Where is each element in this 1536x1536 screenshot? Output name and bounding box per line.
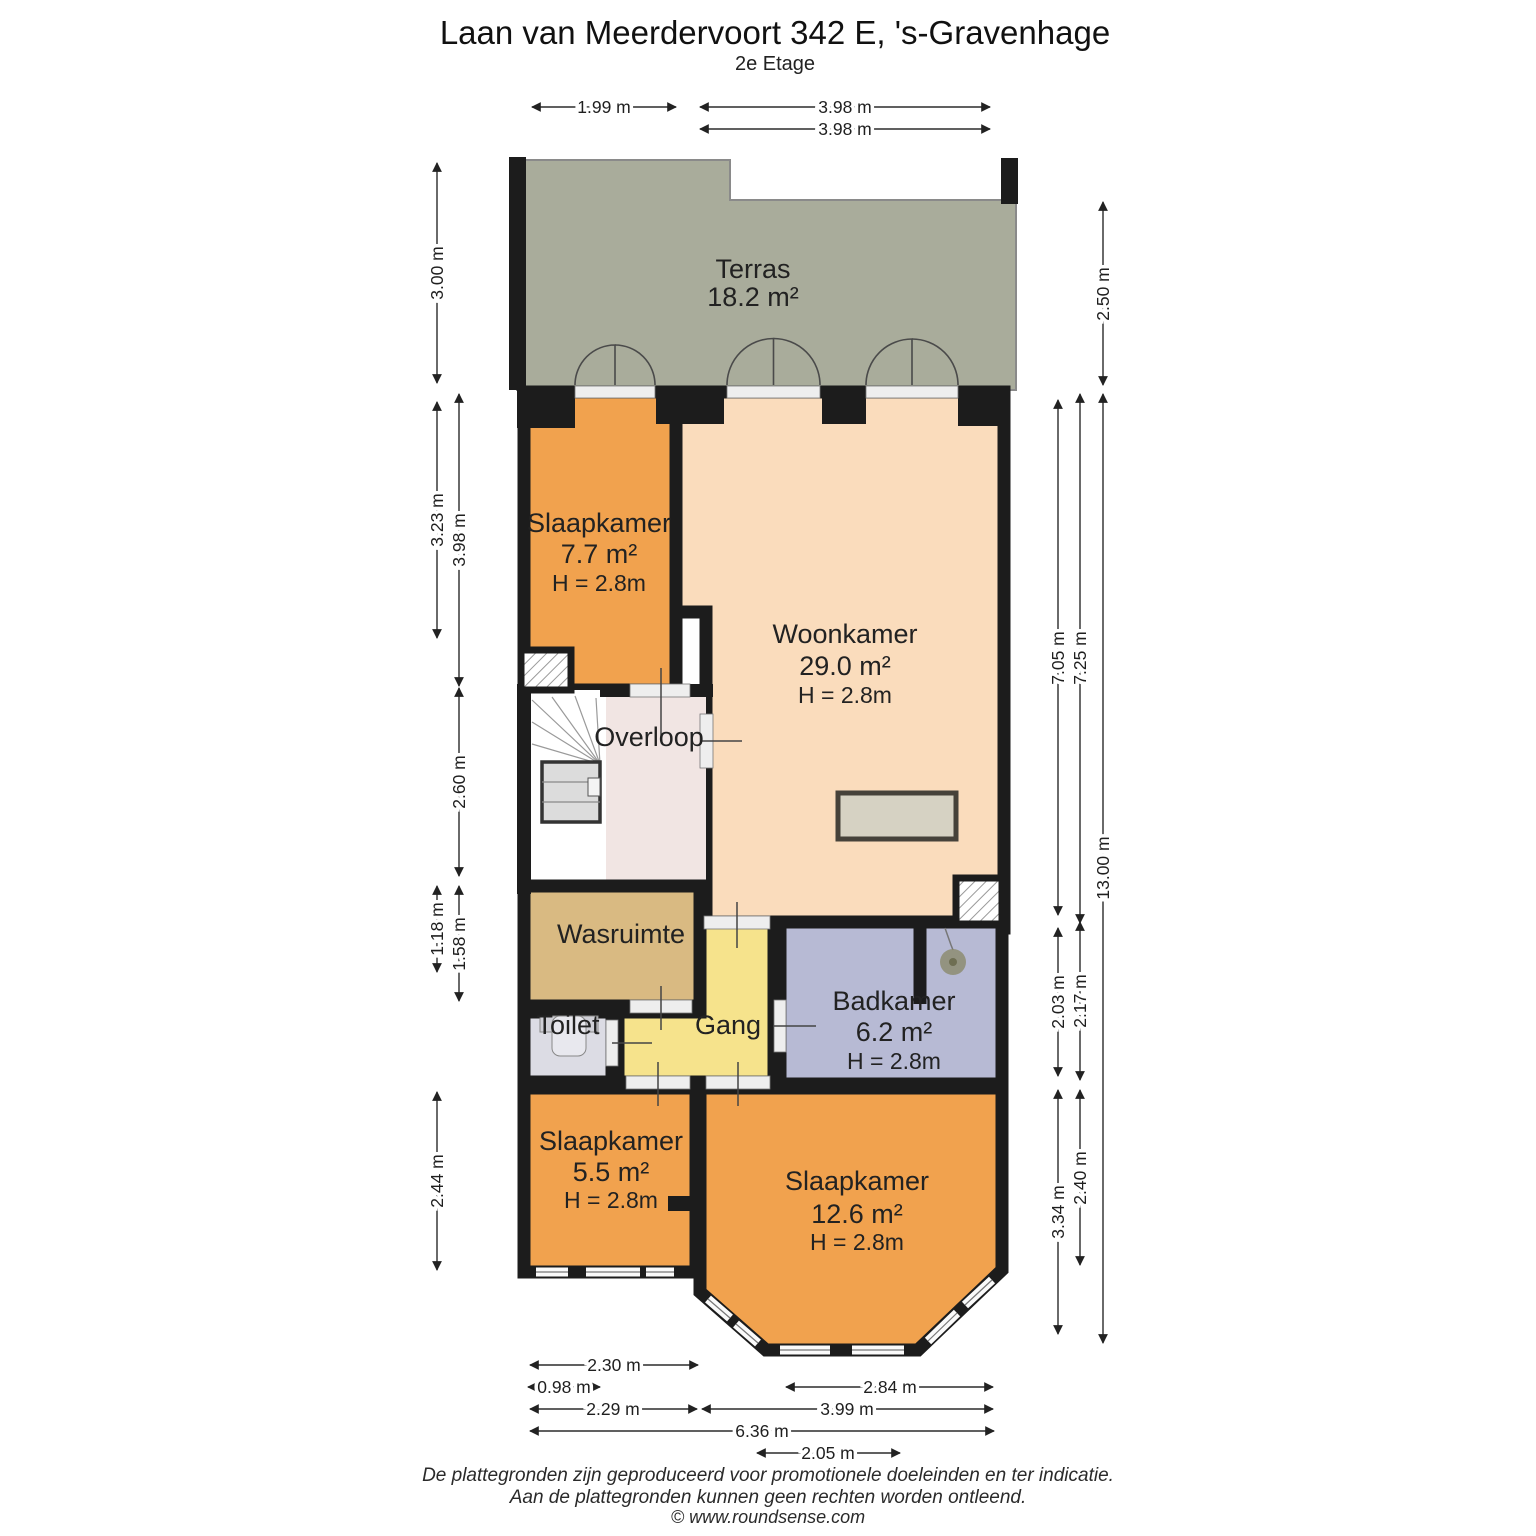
room-terras-name: Terras	[715, 254, 790, 284]
dim-bottom-1: 0.98 m	[528, 1377, 600, 1397]
room-slaapkamer-55-area: 5.5 m²	[573, 1157, 650, 1187]
svg-text:2.29 m: 2.29 m	[586, 1399, 640, 1419]
room-slaapkamer-55-height: H = 2.8m	[564, 1187, 658, 1213]
footer-disclaimer-1: De plattegronden zijn geproduceerd voor …	[422, 1465, 1114, 1486]
dim-bottom-3: 2.29 m	[530, 1399, 697, 1419]
svg-text:2.60 m: 2.60 m	[449, 755, 469, 809]
dim-right-5: 2.17 m	[1070, 922, 1090, 1080]
dim-right-6: 3.34 m	[1048, 1090, 1068, 1334]
room-slaapkamer-126-height: H = 2.8m	[810, 1229, 904, 1255]
dim-right-2: 7.25 m	[1070, 394, 1090, 923]
terras-right-wall	[1001, 158, 1018, 204]
dim-left-2: 3.98 m	[449, 394, 469, 686]
svg-text:2.05 m: 2.05 m	[801, 1443, 855, 1463]
dim-left-5: 1.58 m	[449, 886, 469, 1001]
dim-right-1: 7.05 m	[1048, 400, 1068, 915]
room-slaapkamer-77-height: H = 2.8m	[552, 570, 646, 596]
footer-copyright: © www.roundsense.com	[671, 1507, 865, 1527]
svg-text:1.18 m: 1.18 m	[427, 902, 447, 956]
page-title: Laan van Meerdervoort 342 E, 's-Gravenha…	[440, 14, 1110, 51]
shaft-stairs	[521, 650, 571, 690]
room-slaapkamer-55-name: Slaapkamer	[539, 1126, 683, 1156]
room-badkamer-name: Badkamer	[832, 986, 955, 1016]
dim-left-4: 1.18 m	[427, 886, 447, 972]
svg-text:13.00 m: 13.00 m	[1093, 836, 1113, 899]
svg-text:3.98 m: 3.98 m	[449, 513, 469, 567]
svg-text:3.34 m: 3.34 m	[1048, 1185, 1068, 1239]
svg-text:2.44 m: 2.44 m	[427, 1154, 447, 1208]
shaft-woonkamer-corner	[956, 878, 1002, 924]
room-slaapkamer-126-area: 12.6 m²	[811, 1199, 903, 1229]
svg-text:2.03 m: 2.03 m	[1048, 975, 1068, 1029]
room-badkamer-height: H = 2.8m	[847, 1048, 941, 1074]
room-badkamer-area: 6.2 m²	[856, 1017, 933, 1047]
page-subtitle: 2e Etage	[735, 53, 815, 75]
room-gang-name: Gang	[695, 1010, 761, 1040]
dim-top-1: 3.98 m	[700, 97, 990, 117]
svg-text:3.98 m: 3.98 m	[818, 119, 872, 139]
floorplan-page: Laan van Meerdervoort 342 E, 's-Gravenha…	[0, 0, 1536, 1536]
svg-text:3.23 m: 3.23 m	[427, 493, 447, 547]
room-woonkamer-area: 29.0 m²	[799, 651, 891, 681]
top-wall-pier-1	[656, 386, 724, 424]
svg-text:2.17 m: 2.17 m	[1070, 974, 1090, 1028]
room-terras-area: 18.2 m²	[707, 282, 799, 312]
dim-right-0: 2.50 m	[1093, 202, 1113, 385]
room-woonkamer-height: H = 2.8m	[798, 682, 892, 708]
svg-text:7.25 m: 7.25 m	[1070, 631, 1090, 685]
room-overloop-shape	[606, 690, 706, 882]
svg-text:1.58 m: 1.58 m	[449, 917, 469, 971]
top-wall-pier-left-corner	[517, 386, 575, 428]
svg-text:3.00 m: 3.00 m	[427, 246, 447, 300]
dim-top-2: 3.98 m	[700, 119, 990, 139]
room-slaapkamer-77-name: Slaapkamer	[527, 508, 671, 538]
svg-text:6.36 m: 6.36 m	[735, 1421, 789, 1441]
dim-bottom-0: 2.30 m	[530, 1355, 698, 1375]
room-overloop-name: Overloop	[594, 722, 704, 752]
room-slaapkamer-77-area: 7.7 m²	[561, 539, 638, 569]
svg-text:2.40 m: 2.40 m	[1070, 1151, 1090, 1205]
svg-text:2.84 m: 2.84 m	[863, 1377, 917, 1397]
dim-right-3: 13.00 m	[1093, 394, 1113, 1343]
stairwell-left-wall	[517, 684, 531, 894]
dim-left-6: 2.44 m	[427, 1092, 447, 1270]
dim-right-4: 2.03 m	[1048, 928, 1068, 1076]
dim-bottom-2: 2.84 m	[786, 1377, 993, 1397]
svg-text:2.50 m: 2.50 m	[1093, 267, 1113, 321]
wall-stub-slaapkamer-55	[668, 1196, 698, 1211]
dim-bottom-5: 6.36 m	[530, 1421, 994, 1441]
floorplan-svg: Laan van Meerdervoort 342 E, 's-Gravenha…	[0, 0, 1536, 1536]
top-wall-pier-2	[822, 386, 866, 424]
svg-text:3.98 m: 3.98 m	[818, 97, 872, 117]
dim-bottom-4: 3.99 m	[702, 1399, 993, 1419]
dim-left-3: 2.60 m	[449, 688, 469, 876]
dim-left-0: 3.00 m	[427, 163, 447, 383]
top-wall-pier-right-corner	[958, 386, 1006, 426]
terras-left-wall	[509, 157, 526, 390]
svg-text:3.99 m: 3.99 m	[820, 1399, 874, 1419]
svg-text:2.30 m: 2.30 m	[587, 1355, 641, 1375]
room-wasruimte-name: Wasruimte	[557, 919, 685, 949]
dim-left-1: 3.23 m	[427, 402, 447, 638]
dim-top-0: 1.99 m	[532, 97, 676, 117]
dim-right-7: 2.40 m	[1070, 1090, 1090, 1265]
svg-text:0.98 m: 0.98 m	[537, 1377, 591, 1397]
footer-disclaimer-2: Aan de plattegronden kunnen geen rechten…	[509, 1487, 1027, 1508]
svg-text:7.05 m: 7.05 m	[1048, 631, 1068, 685]
svg-text:1.99 m: 1.99 m	[577, 97, 631, 117]
room-toilet-name: Toilet	[536, 1010, 600, 1040]
room-slaapkamer-126-name: Slaapkamer	[785, 1166, 929, 1196]
room-woonkamer-name: Woonkamer	[772, 619, 917, 649]
table-icon	[838, 793, 956, 839]
dim-bottom-6: 2.05 m	[757, 1443, 900, 1463]
